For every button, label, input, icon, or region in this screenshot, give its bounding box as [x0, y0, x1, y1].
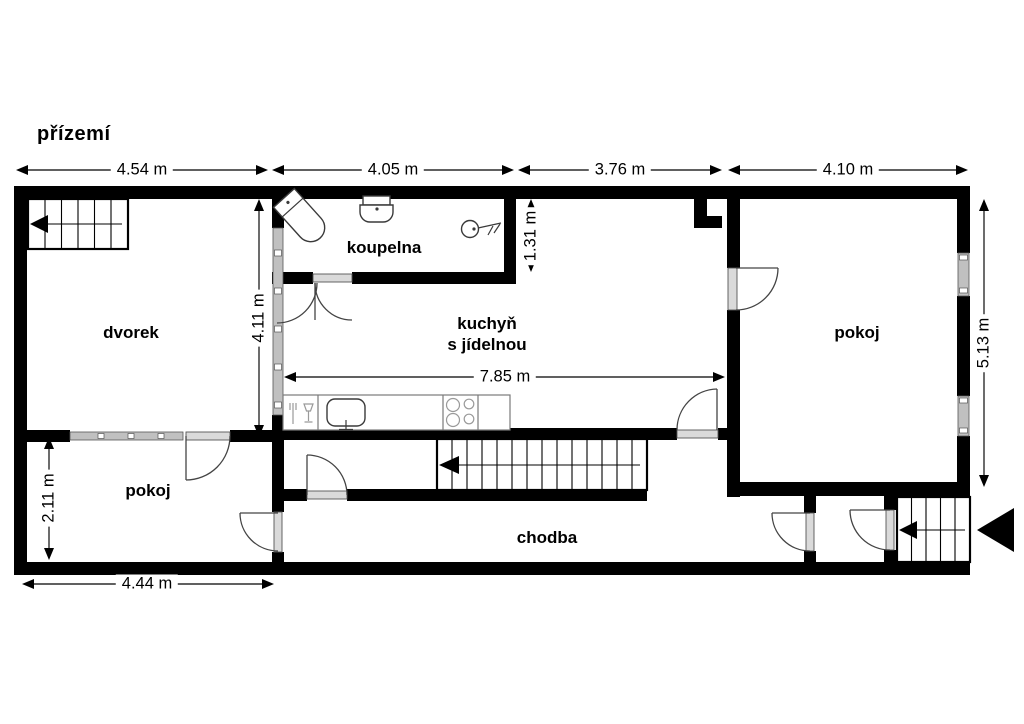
dim-label-top-1: 4.54 m [111, 161, 173, 180]
door-dvorek-pokoj [186, 436, 230, 480]
door-pokoj-left [240, 513, 278, 551]
sink-icon [327, 399, 365, 430]
door-bathroom [277, 283, 352, 323]
dim-label-top-3: 3.76 m [589, 161, 651, 180]
staircase-main [437, 439, 647, 490]
window-pokoj-right-1 [958, 253, 969, 296]
door-kitchen-chodba [677, 389, 717, 430]
room-label-koupelna: koupelna [347, 238, 422, 258]
room-label-pokoj-right: pokoj [834, 323, 879, 343]
door-stairhall-chodba [307, 455, 347, 495]
room-label-dvorek: dvorek [103, 323, 159, 343]
kitchen-counter [283, 395, 510, 430]
dim-label-kitchen-width: 7.85 m [474, 368, 536, 387]
window-pokoj-right-2 [958, 396, 969, 436]
room-label-kuchyn-line1: kuchyň [447, 313, 526, 334]
washbasin-icon [360, 196, 393, 222]
dim-label-top-4: 4.10 m [817, 161, 879, 180]
door-vestibule-2 [850, 510, 890, 550]
chimney-niche [694, 199, 722, 228]
dim-label-dvorek-height: 4.11 m [250, 289, 269, 346]
dim-label-pokoj-height: 5.13 m [975, 314, 994, 372]
page-title: přízemí [37, 123, 111, 146]
dim-label-bathroom-height: 1.31 m [522, 207, 541, 265]
staircase-dvorek [28, 199, 128, 249]
window-dvorek-kitchen [273, 228, 283, 415]
floorplan-svg [0, 0, 1024, 724]
floorplan: přízemí dvorek koupelna kuchyň s jídelno… [0, 0, 1024, 724]
room-label-kuchyn-line2: s jídelnou [447, 334, 526, 355]
room-label-kuchyn: kuchyň s jídelnou [447, 313, 526, 355]
dim-label-left-room-width: 4.44 m [116, 575, 178, 594]
window-dvorek-pokoj [70, 432, 183, 440]
faucet-icon [462, 221, 502, 238]
door-vestibule-1 [772, 513, 810, 551]
door-pokoj-right [736, 268, 778, 310]
entrance-arrow-icon [977, 508, 1014, 552]
dim-label-top-2: 4.05 m [362, 161, 424, 180]
dim-label-left-room-height: 2.11 m [40, 469, 59, 526]
staircase-entrance [897, 497, 970, 562]
room-label-chodba: chodba [517, 528, 577, 548]
room-label-pokoj-left: pokoj [125, 481, 170, 501]
